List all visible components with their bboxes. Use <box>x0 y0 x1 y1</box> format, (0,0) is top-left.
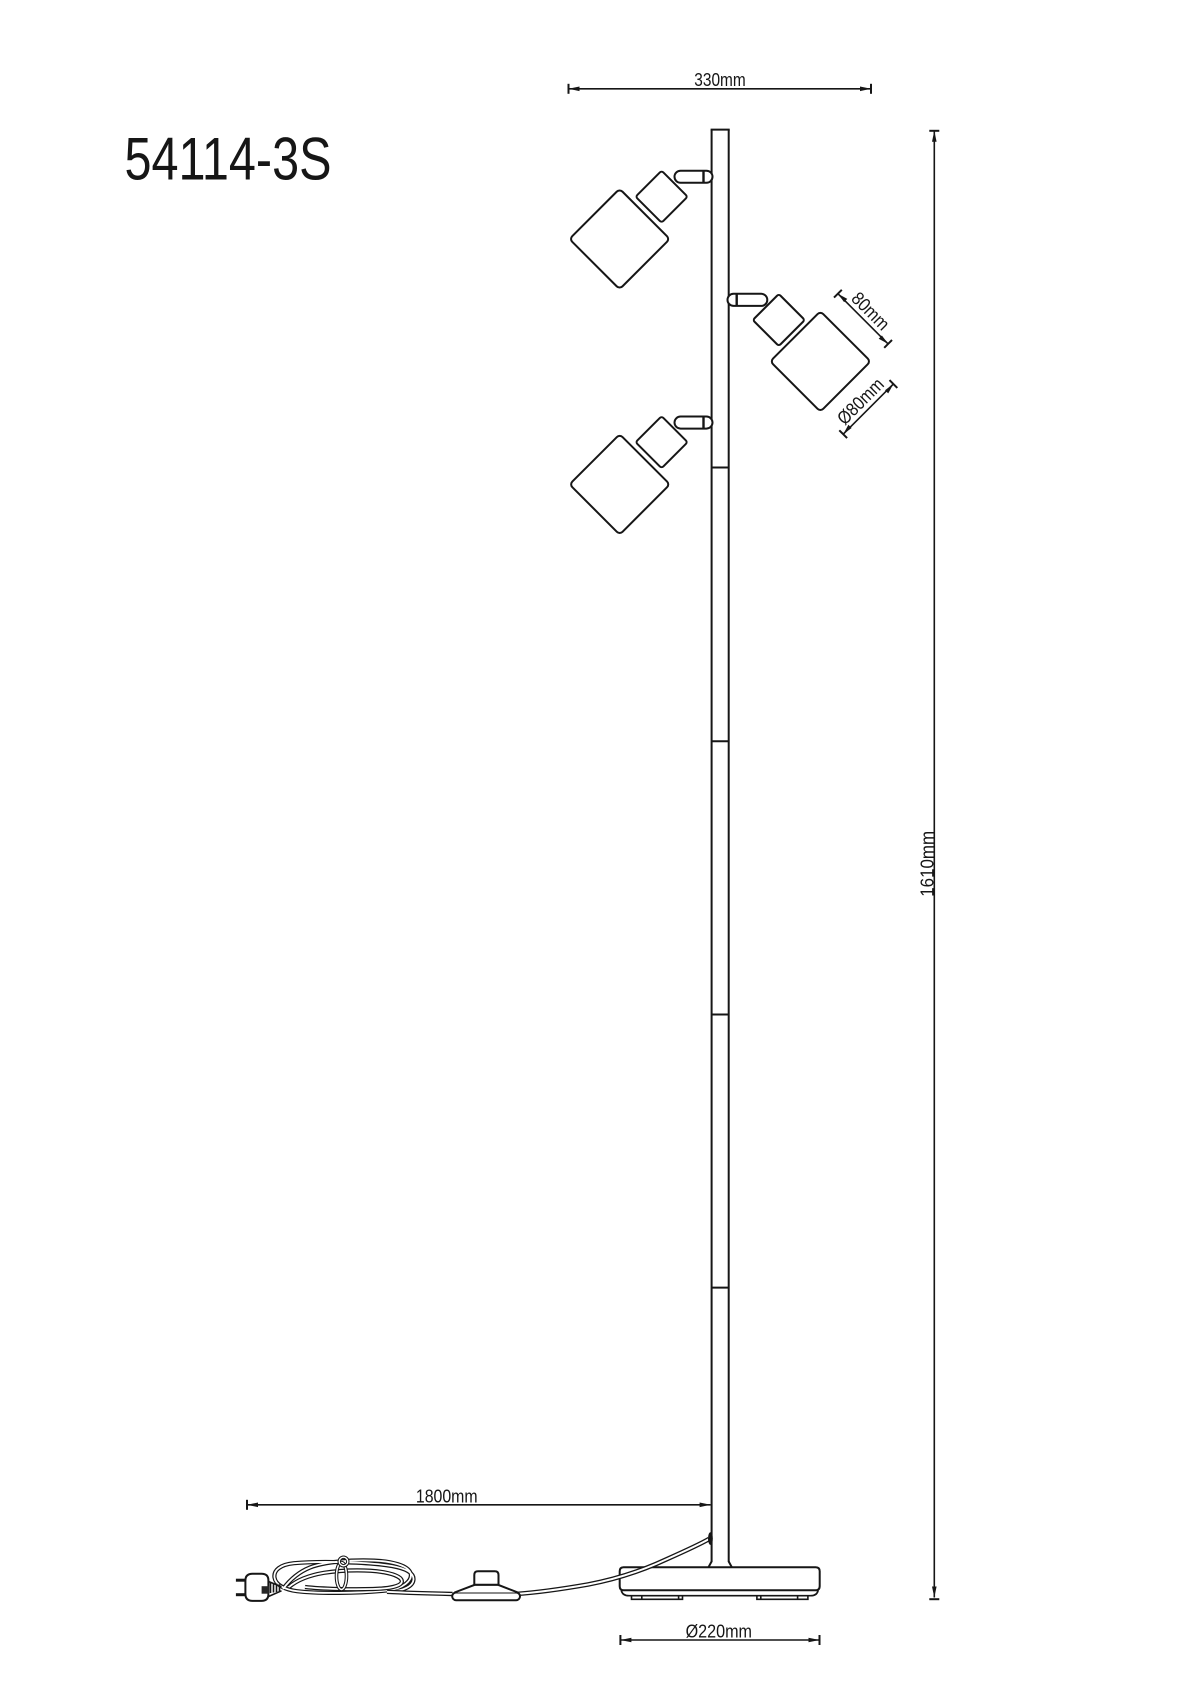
svg-text:1610mm: 1610mm <box>917 831 938 897</box>
svg-text:54114-3S: 54114-3S <box>125 125 332 192</box>
svg-text:330mm: 330mm <box>694 69 745 90</box>
svg-text:1800mm: 1800mm <box>416 1485 478 1506</box>
svg-text:Ø220mm: Ø220mm <box>686 1620 752 1641</box>
